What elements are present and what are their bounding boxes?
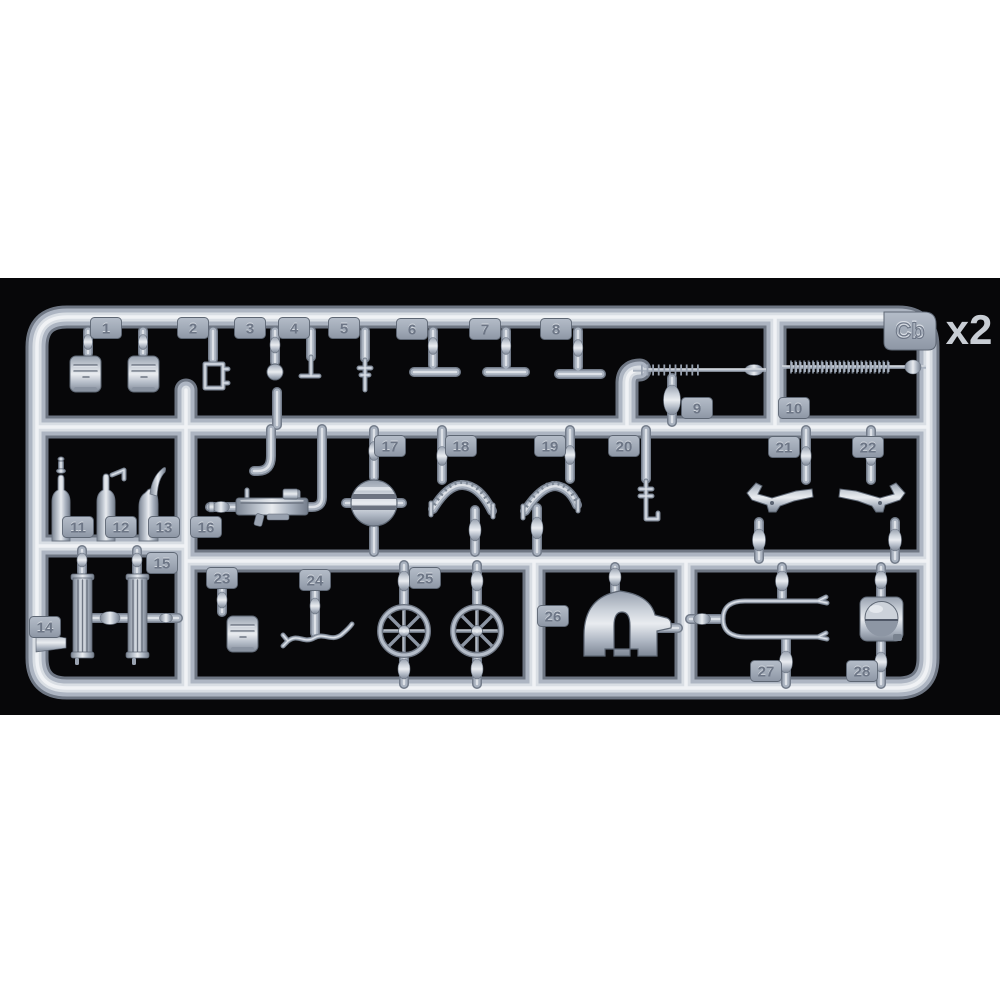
svg-text:24: 24 bbox=[307, 572, 324, 589]
svg-text:25: 25 bbox=[417, 570, 434, 587]
svg-text:27: 27 bbox=[758, 663, 775, 680]
part-tag-18: 1818 bbox=[446, 436, 477, 457]
svg-text:10: 10 bbox=[786, 400, 803, 417]
svg-text:4: 4 bbox=[290, 320, 299, 337]
svg-text:23: 23 bbox=[214, 570, 231, 587]
svg-text:17: 17 bbox=[382, 438, 399, 455]
part-tag-2: 22 bbox=[178, 318, 209, 339]
part-tag-8: 88 bbox=[541, 319, 572, 340]
svg-text:9: 9 bbox=[693, 400, 701, 417]
svg-text:Cb: Cb bbox=[895, 318, 924, 343]
part-23-seat bbox=[227, 616, 258, 652]
part-tag-24: 2424 bbox=[300, 570, 331, 591]
part-28-headlight bbox=[860, 597, 903, 641]
svg-text:20: 20 bbox=[616, 438, 633, 455]
svg-text:14: 14 bbox=[37, 619, 54, 636]
svg-text:7: 7 bbox=[481, 321, 489, 338]
svg-text:5: 5 bbox=[340, 320, 348, 337]
svg-text:8: 8 bbox=[552, 321, 560, 338]
part-tag-14: 1414 bbox=[30, 617, 61, 638]
svg-text:19: 19 bbox=[542, 438, 559, 455]
part-tag-25: 2525 bbox=[410, 568, 441, 589]
svg-text:18: 18 bbox=[453, 438, 470, 455]
part-tag-11: 1111 bbox=[63, 517, 94, 538]
part-tag-5: 55 bbox=[329, 318, 360, 339]
part-tag-22: 2222 bbox=[853, 437, 884, 458]
part-17-disc bbox=[351, 480, 397, 526]
svg-text:28: 28 bbox=[854, 663, 871, 680]
svg-text:11: 11 bbox=[70, 519, 86, 536]
part-9-ribbed-rod bbox=[633, 369, 766, 370]
svg-text:12: 12 bbox=[113, 519, 130, 536]
part-tag-27: 2727 bbox=[751, 661, 782, 682]
part-tag-1: 11 bbox=[91, 318, 122, 339]
part-tag-10: 1010 bbox=[779, 398, 810, 419]
svg-text:16: 16 bbox=[198, 519, 215, 536]
svg-text:3: 3 bbox=[246, 320, 254, 337]
part-tag-6: 66 bbox=[397, 319, 428, 340]
sprue-photo: 11 22 33 44 55 66 77 88 99 1010 1111 121… bbox=[0, 0, 1000, 1000]
part-tag-12: 1212 bbox=[106, 517, 137, 538]
part-tag-19: 1919 bbox=[535, 436, 566, 457]
part-tag-13: 1313 bbox=[149, 517, 180, 538]
part-tag-23: 2323 bbox=[207, 568, 238, 589]
part-tag-4: 44 bbox=[279, 318, 310, 339]
part-tag-17: 1717 bbox=[375, 436, 406, 457]
scanned-instruction-page: 11 22 33 44 55 66 77 88 99 1010 1111 121… bbox=[0, 0, 1000, 1000]
part-3-knob bbox=[267, 364, 283, 380]
svg-text:1: 1 bbox=[102, 320, 110, 337]
part-tag-9: 99 bbox=[682, 398, 713, 419]
svg-text:13: 13 bbox=[156, 519, 173, 536]
svg-text:15: 15 bbox=[154, 555, 171, 572]
svg-text:21: 21 bbox=[776, 439, 793, 456]
quantity-label: x2 bbox=[946, 306, 993, 353]
part-tag-7: 77 bbox=[470, 319, 501, 340]
part-tag-16: 1616 bbox=[191, 517, 222, 538]
part-tag-3: 33 bbox=[235, 318, 266, 339]
part-tag-26: 2626 bbox=[538, 606, 569, 627]
part-tag-20: 2020 bbox=[609, 436, 640, 457]
svg-text:2: 2 bbox=[189, 320, 197, 337]
svg-text:22: 22 bbox=[860, 439, 877, 456]
part-tag-15: 1515 bbox=[147, 553, 178, 574]
sprue-code-plate: Cb Cb bbox=[884, 312, 936, 350]
part-tag-28: 2828 bbox=[847, 661, 878, 682]
part-tag-21: 2121 bbox=[769, 437, 800, 458]
svg-text:26: 26 bbox=[545, 608, 562, 625]
svg-text:6: 6 bbox=[408, 321, 416, 338]
